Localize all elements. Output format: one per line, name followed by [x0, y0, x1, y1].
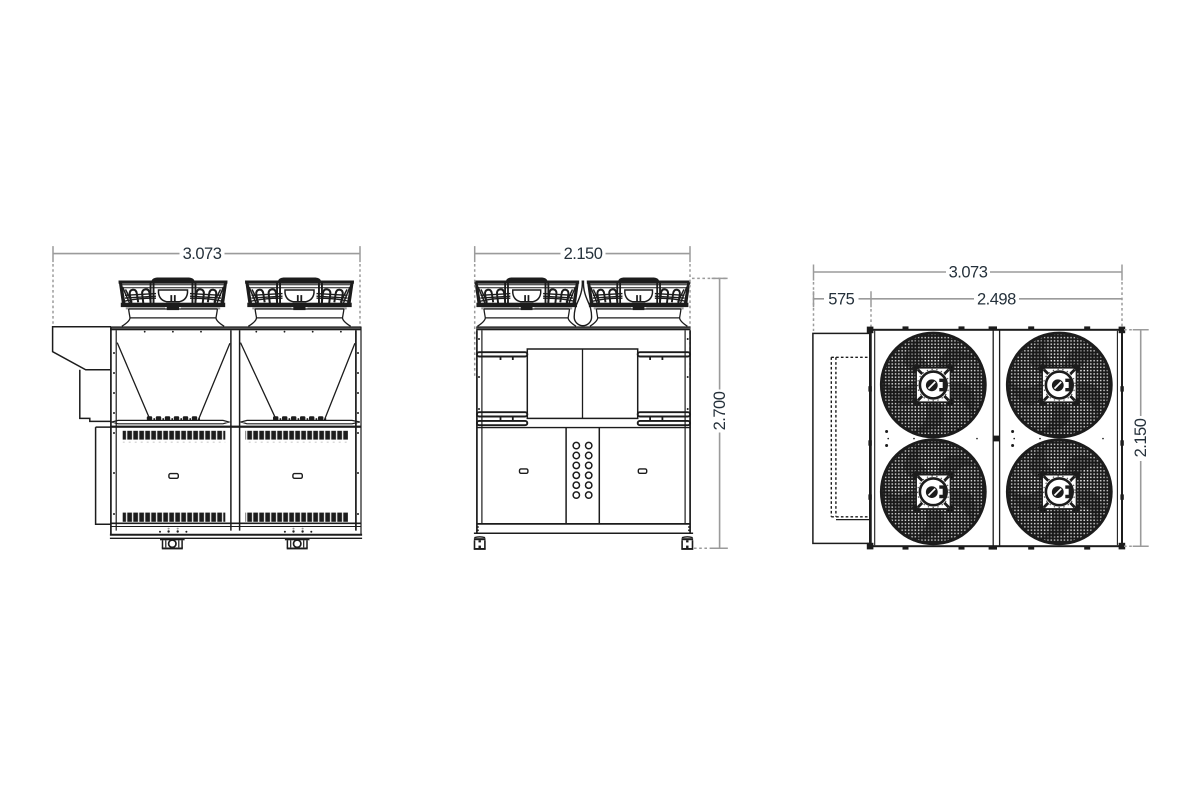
svg-text:3.073: 3.073 — [949, 264, 988, 282]
svg-text:3.073: 3.073 — [183, 245, 222, 263]
svg-text:2.150: 2.150 — [564, 245, 603, 263]
svg-text:2.498: 2.498 — [977, 290, 1016, 308]
svg-text:2.700: 2.700 — [711, 391, 729, 430]
svg-text:2.150: 2.150 — [1132, 418, 1150, 457]
svg-text:575: 575 — [828, 290, 854, 308]
